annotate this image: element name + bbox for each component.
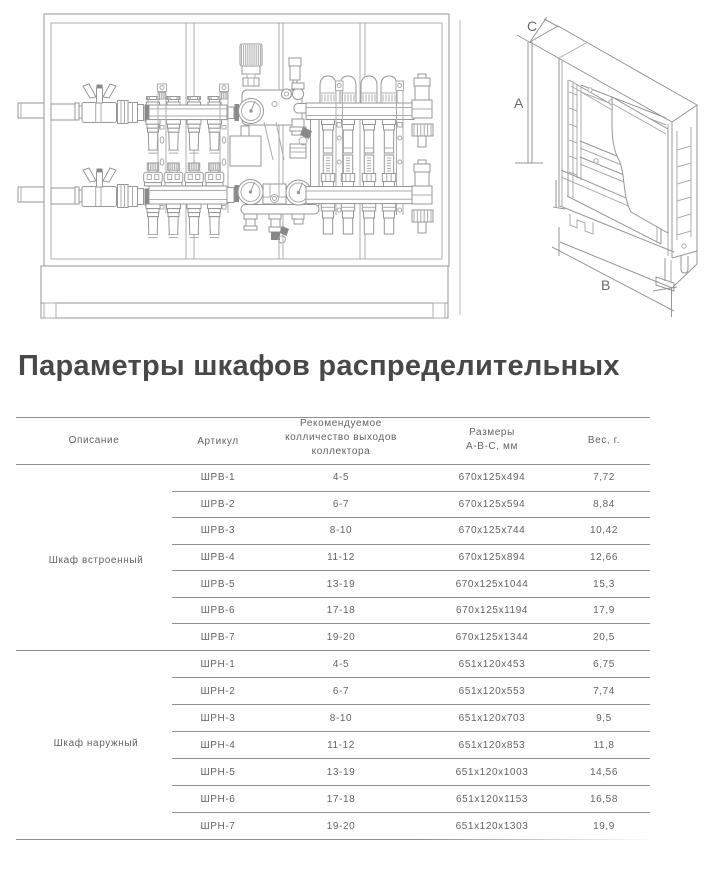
svg-text:B: B — [601, 277, 610, 293]
svg-text:C: C — [527, 18, 537, 34]
svg-text:A: A — [514, 95, 524, 111]
